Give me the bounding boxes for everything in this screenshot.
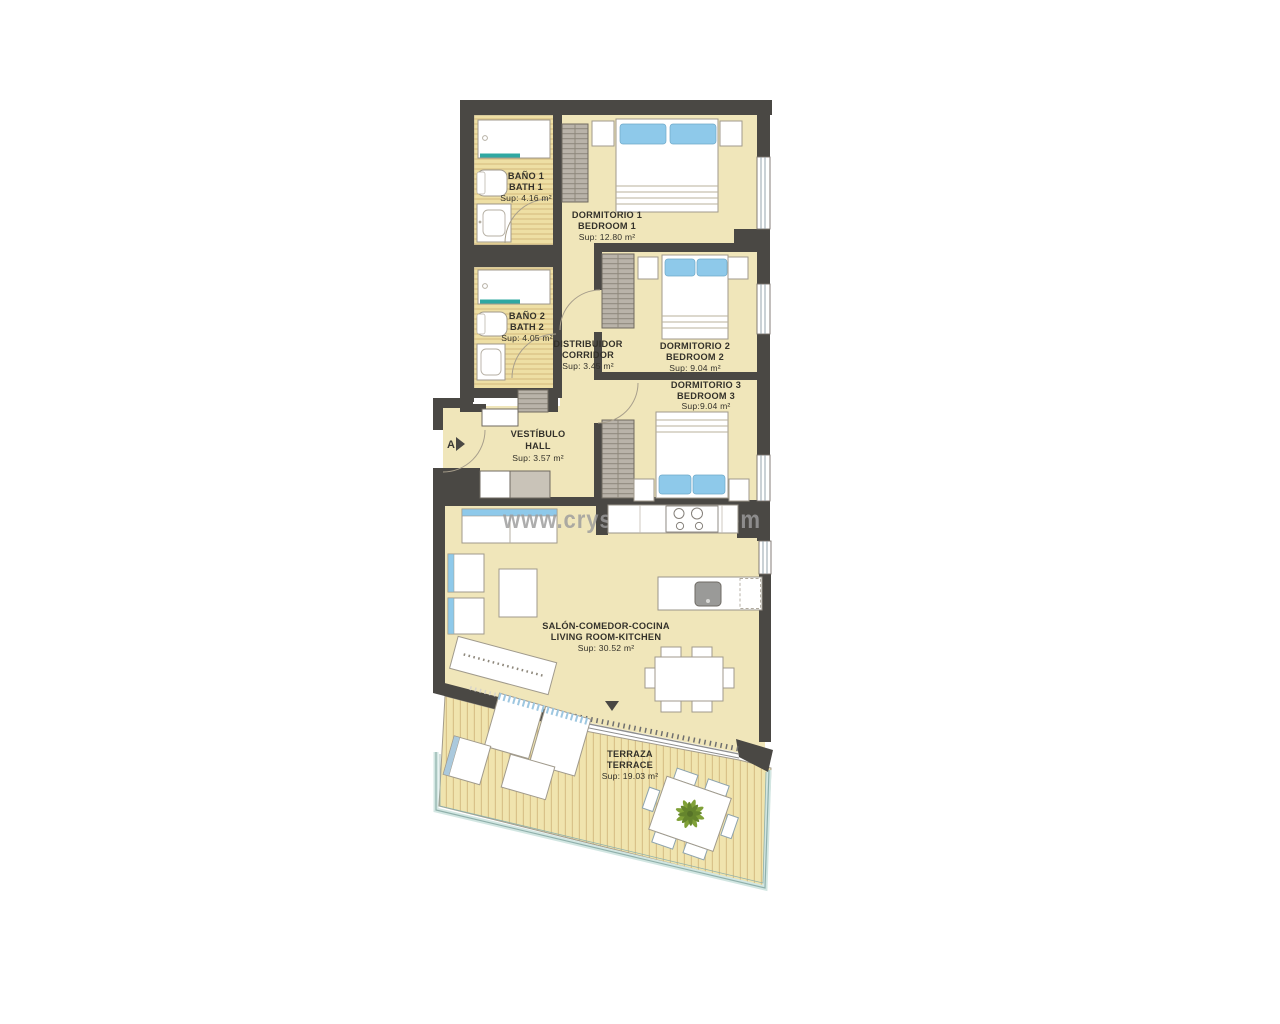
wall-right-1 — [757, 100, 770, 157]
dining-chair — [645, 668, 656, 688]
dining-chair — [661, 647, 681, 658]
window-bedroom3 — [757, 455, 770, 501]
corridor-name-es: DISTRIBUIDOR — [553, 339, 622, 349]
terrace-area: Sup: 19.03 m² — [602, 771, 659, 781]
corridor-area: Sup: 3.45 m² — [562, 361, 614, 371]
bedroom2-name-es: DORMITORIO 2 — [660, 341, 730, 351]
terrace-name-en: TERRACE — [607, 760, 653, 770]
wall-top — [460, 100, 772, 115]
bedroom3-name-en: BEDROOM 3 — [677, 391, 735, 401]
double-bed — [662, 255, 728, 339]
nightstand — [638, 257, 658, 279]
wall-bath2-corridor — [553, 267, 562, 398]
bedroom2-area: Sup: 9.04 m² — [669, 363, 721, 373]
label-bedroom1: DORMITORIO 1 BEDROOM 1 Sup: 12.80 m² — [572, 210, 642, 242]
wall-hall-left-upper — [433, 402, 443, 430]
bathroom2-name-es: BAÑO 2 — [509, 311, 545, 321]
double-bed — [656, 412, 728, 498]
hall-name-en: HALL — [525, 441, 551, 451]
bedroom3-name-es: DORMITORIO 3 — [671, 380, 741, 390]
wall-bedroom2-bedroom3 — [594, 372, 757, 380]
label-corridor: DISTRIBUIDOR CORRIDOR Sup: 3.45 m² — [553, 339, 622, 371]
wall-right-2 — [757, 229, 770, 284]
washbasin — [477, 344, 505, 380]
wall-right-3 — [757, 334, 770, 455]
bathroom2-area: Sup: 4.05 m² — [501, 333, 553, 343]
bathroom2-name-en: BATH 2 — [510, 322, 544, 332]
wall-living-left — [433, 503, 445, 686]
bedroom1-area: Sup: 12.80 m² — [579, 232, 636, 242]
pillow — [670, 124, 716, 144]
living-name-en: LIVING ROOM-KITCHEN — [551, 632, 662, 642]
nightstand — [728, 257, 748, 279]
wardrobe-bedroom3 — [602, 420, 634, 498]
burner — [695, 522, 702, 529]
wall-bath1-bedroom1 — [553, 115, 562, 247]
hall-area: Sup: 3.57 m² — [512, 453, 564, 463]
label-terrace: TERRAZA TERRACE Sup: 19.03 m² — [602, 749, 659, 781]
window-living — [759, 541, 771, 574]
bedroom3-area: Sup:9.04 m² — [681, 401, 730, 411]
burner — [674, 509, 684, 519]
closet-hall — [480, 471, 550, 498]
stove — [666, 506, 718, 532]
burner — [676, 522, 683, 529]
bathtub-ledge — [480, 154, 520, 158]
pillow — [659, 475, 691, 494]
armchair — [448, 554, 484, 592]
wall-corridor-bedroom3 — [594, 423, 602, 505]
nightstand — [634, 479, 654, 501]
coffee-table — [499, 569, 537, 617]
toilet-cistern — [477, 314, 485, 334]
corridor-name-en: CORRIDOR — [562, 350, 614, 360]
floorplan-drawing: www.crystalshore.com — [0, 0, 1280, 1024]
burner — [692, 508, 703, 519]
wardrobe-bedroom2 — [602, 254, 634, 328]
sink-drain — [706, 599, 710, 603]
window-bedroom1 — [757, 157, 770, 229]
bathtub — [478, 120, 550, 158]
bathroom1-area: Sup: 4.16 m² — [500, 193, 552, 203]
bathtub — [478, 270, 550, 304]
dining-chair — [661, 701, 681, 712]
bathtub-ledge — [480, 300, 520, 304]
nightstand — [592, 121, 614, 146]
dining-chair — [692, 647, 712, 658]
living-name-es: SALÓN-COMEDOR-COCINA — [542, 620, 670, 631]
dining-chair — [723, 668, 734, 688]
double-bed — [616, 119, 718, 212]
window-bedroom2 — [757, 284, 770, 334]
wall-corridor-bedroom2-upper — [594, 252, 602, 290]
bathroom1-name-en: BATH 1 — [509, 182, 543, 192]
pillow — [693, 475, 725, 494]
terrace-name-es: TERRAZA — [607, 749, 653, 759]
toilet-cistern — [477, 172, 485, 194]
label-bedroom2: DORMITORIO 2 BEDROOM 2 Sup: 9.04 m² — [660, 341, 730, 373]
wardrobe-bedroom1 — [562, 124, 588, 202]
pillow — [620, 124, 666, 144]
armchair — [448, 598, 484, 634]
bedroom1-name-es: DORMITORIO 1 — [572, 210, 642, 220]
living-area: Sup: 30.52 m² — [578, 643, 635, 653]
section-marker-label: A — [447, 439, 455, 451]
hall-name-es: VESTÍBULO — [511, 428, 566, 439]
dining-chair — [692, 701, 712, 712]
bathroom1-name-es: BAÑO 1 — [508, 171, 544, 181]
wall-closet-edge — [547, 388, 558, 412]
kitchen-island — [658, 577, 762, 610]
floorplan-page: www.crystalshore.com — [0, 0, 1280, 1024]
wall-bedroom1-bottom — [594, 243, 757, 252]
wall-between-baths — [466, 245, 562, 267]
bedroom1-name-en: BEDROOM 1 — [578, 221, 636, 231]
bedroom2-name-en: BEDROOM 2 — [666, 352, 724, 362]
pillow — [697, 259, 727, 276]
basin-tap — [479, 221, 482, 224]
pillow — [665, 259, 695, 276]
dining-table — [655, 657, 723, 701]
nightstand — [729, 479, 749, 501]
nightstand — [720, 121, 742, 146]
